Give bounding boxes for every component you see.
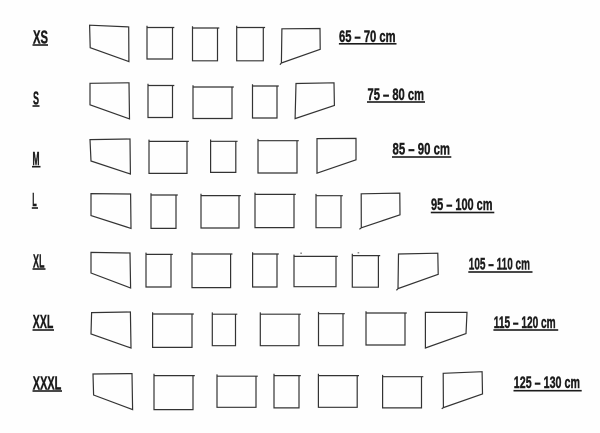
svg-text:105 – 110 cm: 105 – 110 cm: [469, 255, 530, 274]
svg-text:65 – 70 cm: 65 – 70 cm: [339, 27, 396, 46]
svg-text:125 – 130 cm: 125 – 130 cm: [514, 373, 580, 392]
svg-text:95 – 100 cm: 95 – 100 cm: [431, 195, 493, 214]
svg-text:85 – 90 cm: 85 – 90 cm: [393, 140, 451, 159]
svg-text:M: M: [33, 148, 40, 169]
svg-text:75 – 80 cm: 75 – 80 cm: [368, 85, 425, 104]
svg-text:L: L: [32, 189, 37, 210]
svg-text:XXL: XXL: [33, 311, 54, 332]
svg-text:115 – 120 cm: 115 – 120 cm: [494, 313, 556, 332]
